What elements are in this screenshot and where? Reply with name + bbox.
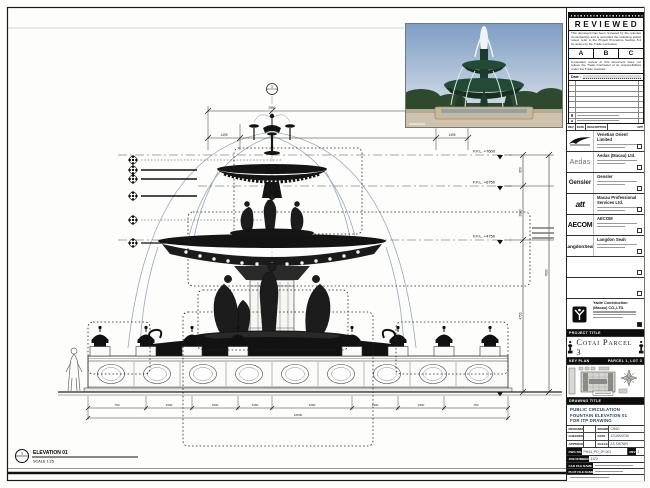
stamp-date-row: Date : — [569, 73, 643, 80]
empty-consultant-slot — [567, 278, 644, 299]
consultant-mps: att Macau Professional Services Ltd. — [567, 194, 644, 215]
drawing-sheet: 1 F.F.L. +7600 F.F.L. +6750 F.F.L. — [0, 0, 650, 488]
key-plan-map — [567, 365, 644, 398]
svg-text:2250: 2250 — [252, 403, 259, 407]
svg-text:7600: 7600 — [545, 269, 549, 276]
stamp-disclaimer-text: Consultant review of this document does … — [569, 59, 643, 73]
drawing-title-bar: DRAWING TITLE — [567, 398, 644, 405]
svg-text:1495: 1495 — [220, 133, 227, 137]
svg-text:F.F.L. +4750: F.F.L. +4750 — [473, 234, 496, 239]
elevation-title-callout: 1 ELEVATION 01 SCALE 1:25 — [16, 450, 139, 464]
grade-c: C — [619, 49, 643, 58]
svg-text:ELEVATION 01: ELEVATION 01 — [33, 450, 68, 456]
stamp-status-grades: A B C — [569, 48, 643, 59]
ground-line — [58, 392, 562, 395]
consultant-langdon-seah: LangdonSeah Langdon Seah — [567, 236, 644, 257]
svg-text:SCALE 1:25: SCALE 1:25 — [33, 460, 54, 464]
status-checkbox — [637, 207, 642, 212]
consultant-venetian: Venetian Orient Limited — [567, 131, 644, 152]
revision-header-row: REV DATE DESCRIPTION APP — [567, 124, 644, 131]
signature-table: DESIGNED DRAWN CHAD CHECKED - DATE 12/JA… — [567, 426, 644, 448]
revision-number: 3 — [636, 448, 644, 455]
grade-b: B — [594, 49, 619, 58]
key-plan-zone: PARCEL 1, LOT 3 — [608, 359, 642, 363]
reviewed-stamp: REVIEWED This document has been reviewed… — [568, 12, 644, 124]
stamp-log-table — [569, 80, 643, 123]
venetian-logo-icon — [567, 131, 594, 151]
rev-col-label: REV — [567, 124, 576, 130]
status-checkbox — [637, 270, 642, 275]
svg-text:4750: 4750 — [519, 312, 523, 319]
app-col-label: APP — [636, 124, 644, 130]
svg-text:750: 750 — [114, 403, 119, 407]
description-col-label: DESCRIPTION — [586, 124, 608, 130]
fountain-photo — [405, 23, 563, 128]
aecom-logo: AECOM — [567, 215, 594, 235]
dwg-number: PH34_PD_JP-001 — [582, 448, 628, 455]
upper-statues — [241, 194, 303, 233]
mps-logo: att — [567, 194, 594, 214]
svg-text:F.F.L. +6750: F.F.L. +6750 — [473, 180, 496, 185]
sidebar-footer — [567, 475, 644, 481]
project-name-row: Cotai Parcel 3 — [567, 337, 644, 358]
project-title-bar: PROJECT TITLE — [567, 330, 644, 337]
date-col-label: DATE — [576, 124, 586, 130]
basin-enclosure-wall — [84, 356, 512, 392]
status-checkbox — [637, 249, 642, 254]
job-number-row: JOB NUMBER 3123 — [567, 456, 644, 463]
stamp-title: REVIEWED — [569, 18, 643, 31]
svg-text:2250: 2250 — [309, 403, 316, 407]
consultant-gensler: Gensler Gensler — [567, 173, 644, 194]
job-number: 3123 — [589, 456, 644, 462]
finial-ornament-icon — [567, 340, 573, 355]
svg-text:1500: 1500 — [212, 403, 219, 407]
key-plan-bar: KEY PLAN PARCEL 1, LOT 3 — [567, 358, 644, 365]
svg-text:F.F.L. +7600: F.F.L. +7600 — [473, 149, 496, 154]
svg-text:850: 850 — [519, 167, 523, 173]
svg-text:2000: 2000 — [519, 209, 523, 216]
svg-text:1495: 1495 — [448, 133, 455, 137]
status-checkbox-filled — [637, 322, 642, 327]
consultant-aedas: Aedas Aedas (Macau) Ltd. — [567, 152, 644, 173]
svg-text:750: 750 — [473, 403, 478, 407]
bottom-dimensions: 750 1500 1500 2250 2250 1500 1500 750 10… — [86, 396, 510, 420]
status-checkbox — [637, 186, 642, 191]
langdon-seah-logo: LangdonSeah — [567, 236, 594, 256]
project-name: Cotai Parcel 3 — [576, 337, 634, 357]
svg-text:1500: 1500 — [372, 403, 379, 407]
stamp-body-text: This document has been reviewed by the r… — [569, 31, 643, 49]
yadie-emblem-icon — [567, 299, 591, 329]
drawing-title-text: PUBLIC CIRCULATION FOUNTAIN ELEVATION 01… — [567, 405, 644, 426]
status-checkbox — [637, 165, 642, 170]
empty-consultant-slot — [567, 257, 644, 278]
vertical-dimensions: 850 2000 4750 7600 — [519, 152, 553, 395]
svg-text:10500: 10500 — [294, 413, 303, 417]
dwg-number-row: DWG NO. PH34_PD_JP-001 REV 3 — [567, 448, 644, 456]
aedas-logo: Aedas — [567, 152, 594, 172]
svg-text:1500: 1500 — [418, 403, 425, 407]
svg-text:2990: 2990 — [268, 106, 275, 110]
fountain-structure — [149, 114, 395, 356]
gensler-logo: Gensler — [567, 173, 594, 193]
scale-figure — [66, 348, 82, 391]
status-checkbox — [637, 228, 642, 233]
detail-callout-boxes — [88, 148, 530, 446]
lower-statues — [214, 263, 330, 340]
status-checkbox — [637, 144, 642, 149]
contractor-block: Yadie Construction (Macau) CO.,LTD. — [567, 299, 644, 330]
consultant-aecom: AECOM AECOM — [567, 215, 644, 236]
svg-text:1500: 1500 — [166, 403, 173, 407]
status-checkbox — [637, 291, 642, 296]
grade-a: A — [569, 49, 594, 58]
finial-ornament-icon — [638, 340, 644, 355]
